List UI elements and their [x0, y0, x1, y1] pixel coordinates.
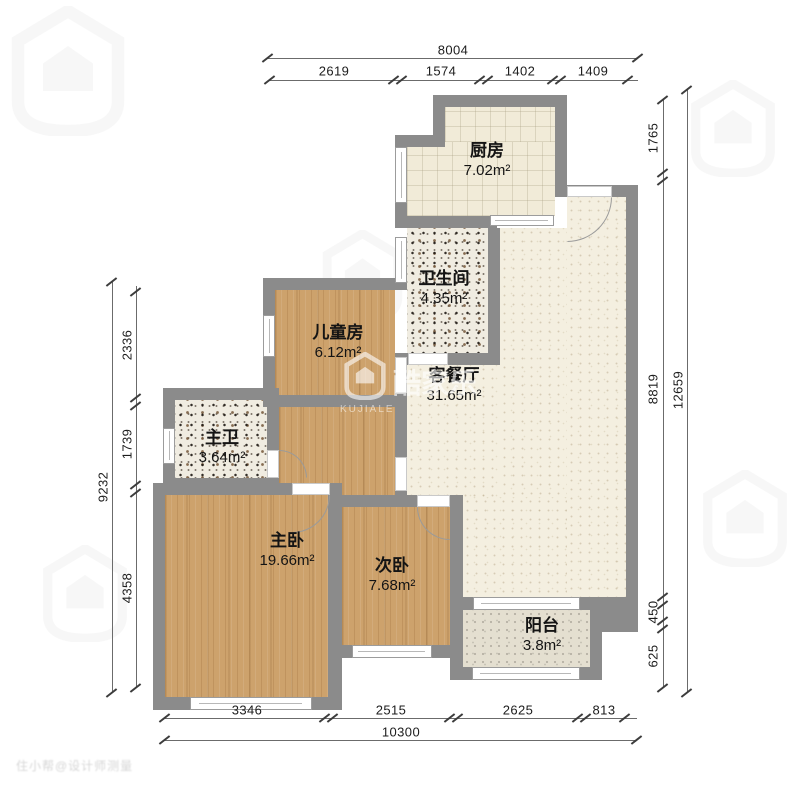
room-label-bathroom: 卫生间 4.35m² — [419, 268, 470, 309]
right-exterior-wall — [626, 185, 638, 610]
bathroom-right-wall — [488, 228, 500, 365]
room-area: 7.02m² — [464, 161, 511, 181]
room-name: 阳台 — [523, 615, 561, 636]
dim-label-bottom-seg: 2515 — [376, 703, 407, 718]
room-area: 3.8m² — [523, 636, 561, 656]
bathroom-window — [395, 237, 407, 283]
dim-label-top-total: 8004 — [438, 43, 469, 58]
dim-label-top-seg: 2619 — [319, 64, 350, 79]
dim-label-top-seg: 1409 — [578, 64, 609, 79]
room-label-second-bedroom: 次卧 7.68m² — [369, 555, 416, 596]
room-area: 3.64m² — [199, 448, 246, 468]
kids-room-window — [263, 315, 275, 357]
dim-label-right-seg: 625 — [646, 645, 661, 668]
master-bathroom-window — [163, 428, 175, 464]
room-name: 厨房 — [464, 140, 511, 161]
second-bedroom-door — [417, 495, 450, 507]
dim-label-left-total: 9232 — [96, 472, 111, 503]
dim-label-left-seg: 4358 — [120, 573, 135, 604]
dim-line-right-segments — [663, 100, 664, 688]
room-name: 次卧 — [369, 555, 416, 576]
kitchen-bottom-wall — [395, 216, 497, 228]
dim-line-left-segments — [136, 286, 137, 688]
balcony-window — [472, 667, 580, 680]
floorplan-canvas: 厨房 7.02m² 卫生间 4.35m² 儿童房 6.12m² 客餐厅 31.6… — [0, 0, 800, 800]
dim-line-top-total — [268, 58, 638, 59]
corridor-floor — [279, 407, 395, 495]
room-name: 主卧 — [259, 530, 314, 551]
kitchen-right-wall — [555, 95, 567, 197]
second-bedroom-window — [352, 645, 432, 658]
room-name: 主卫 — [199, 427, 246, 448]
master-bedroom-left-wall — [153, 483, 165, 710]
master-bedroom-right-wall — [328, 495, 342, 710]
kujiale-watermark-latin: KUJIALE — [340, 404, 395, 415]
room-name: 卫生间 — [419, 268, 470, 289]
dim-line-top-segments — [268, 80, 638, 81]
room-area: 4.35m² — [419, 289, 470, 309]
master-bathroom-door — [267, 450, 279, 478]
kitchen-window — [395, 147, 407, 203]
dim-line-left-total — [112, 282, 113, 693]
dim-label-top-seg: 1402 — [505, 64, 536, 79]
dim-label-right-seg: 450 — [646, 601, 661, 624]
dim-label-right-seg: 1765 — [646, 123, 661, 154]
kujiale-watermark-text: 酷家乐 — [393, 362, 477, 402]
room-label-master-bathroom: 主卫 3.64m² — [199, 427, 246, 468]
dim-line-right-total — [687, 90, 688, 693]
living-room-floor — [567, 197, 626, 597]
dim-label-top-seg: 1574 — [426, 64, 457, 79]
dim-label-bottom-seg: 3346 — [232, 703, 263, 718]
dim-label-right-seg: 8819 — [646, 374, 661, 405]
watermark-ghost-icon — [688, 80, 778, 177]
dim-line-bottom-total — [165, 740, 637, 741]
master-bathroom-top-wall — [163, 388, 279, 400]
master-bedroom-door — [292, 483, 330, 495]
kitchen-top-wall — [433, 95, 567, 107]
watermark-ghost-icon — [40, 545, 130, 642]
room-area: 7.68m² — [369, 576, 416, 596]
room-label-master-bedroom: 主卧 19.66m² — [259, 530, 314, 571]
entry-door-leaf — [567, 186, 612, 197]
room-name: 儿童房 — [313, 322, 364, 343]
kujiale-logo-icon — [343, 352, 387, 400]
dim-label-left-seg: 1739 — [120, 429, 135, 460]
room-label-kitchen: 厨房 7.02m² — [464, 140, 511, 181]
balcony-sliding-door — [473, 597, 580, 610]
dim-label-right-total: 12659 — [671, 371, 686, 409]
dim-label-bottom-seg: 2625 — [503, 703, 534, 718]
room-label-balcony: 阳台 3.8m² — [523, 615, 561, 656]
dim-label-bottom-total: 10300 — [382, 725, 420, 740]
watermark-ghost-icon — [8, 6, 128, 136]
kitchen-floor — [445, 107, 555, 142]
corner-watermark-text: 住小帮@设计师测量 — [16, 757, 133, 774]
living-room-floor — [463, 497, 567, 597]
kids-room-top-wall — [263, 278, 407, 290]
corridor-door-opening — [395, 457, 407, 491]
dim-line-bottom-segments — [165, 718, 637, 719]
dim-label-bottom-seg: 813 — [593, 703, 616, 718]
room-area: 19.66m² — [259, 551, 314, 571]
kitchen-sliding-door — [490, 215, 554, 226]
watermark-ghost-icon — [700, 470, 790, 567]
dim-label-left-seg: 2336 — [120, 330, 135, 361]
